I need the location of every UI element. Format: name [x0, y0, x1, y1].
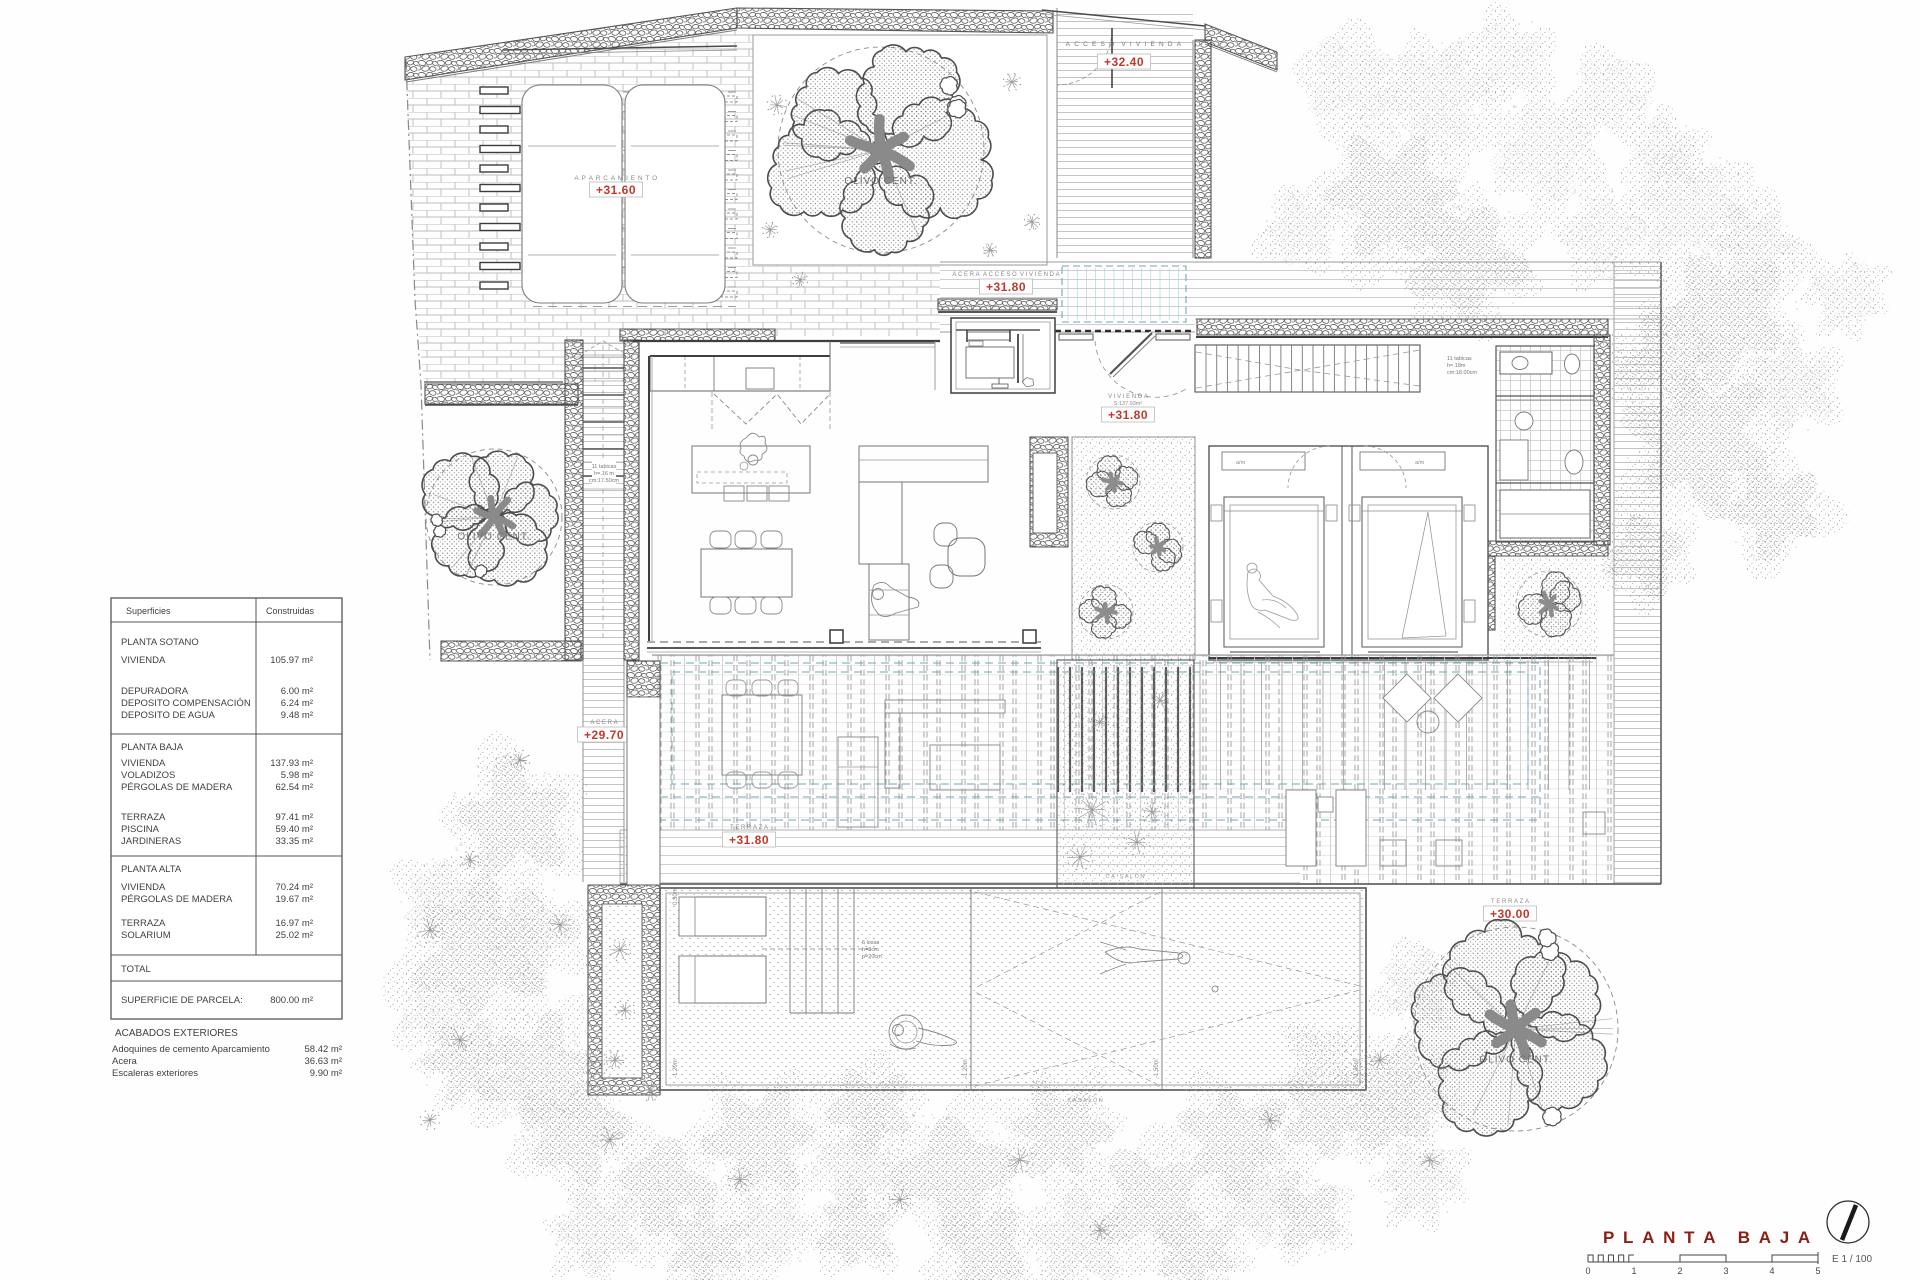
svg-text:V I V I E N D A: V I V I E N D A	[1108, 394, 1148, 400]
svg-text:2: 2	[1677, 1266, 1682, 1276]
svg-text:58.42 m²: 58.42 m²	[305, 1044, 343, 1055]
svg-text:SUPERFICIE DE PARCELA:: SUPERFICIE DE PARCELA:	[121, 995, 243, 1006]
svg-text:C A · S A L Ó N: C A · S A L Ó N	[1106, 873, 1145, 880]
svg-text:105.97 m²: 105.97 m²	[270, 655, 313, 666]
svg-text:VIVIENDA: VIVIENDA	[121, 655, 166, 666]
svg-text:p=20cm: p=20cm	[862, 954, 882, 960]
svg-text:9.90 m²: 9.90 m²	[310, 1068, 342, 1079]
svg-text:+29.70: +29.70	[584, 728, 624, 742]
svg-text:62.54 m²: 62.54 m²	[276, 782, 314, 793]
svg-text:4: 4	[1769, 1266, 1774, 1276]
svg-text:19.67 m²: 19.67 m²	[276, 894, 314, 905]
svg-text:TERRAZA: TERRAZA	[121, 918, 166, 929]
svg-text:6.24 m²: 6.24 m²	[281, 698, 313, 709]
svg-text:PISCINA: PISCINA	[121, 824, 160, 835]
svg-text:5: 5	[1815, 1266, 1820, 1276]
svg-text:PÉRGOLAS DE MADERA: PÉRGOLAS DE MADERA	[121, 782, 233, 793]
svg-text:T E R R A Z A: T E R R A Z A	[1491, 899, 1529, 905]
svg-text:Acera: Acera	[112, 1056, 138, 1067]
svg-text:PLANTA BAJA: PLANTA BAJA	[121, 742, 184, 753]
svg-text:70.24 m²: 70.24 m²	[276, 882, 314, 893]
svg-text:25.02 m²: 25.02 m²	[276, 930, 314, 941]
svg-text:PLANTA SOTANO: PLANTA SOTANO	[121, 637, 199, 648]
svg-text:DEPURADORA: DEPURADORA	[121, 686, 189, 697]
svg-text:-1.50m: -1.50m	[1154, 1059, 1160, 1078]
svg-text:S:137.93m²: S:137.93m²	[1114, 401, 1143, 407]
svg-text:SOLARIUM: SOLARIUM	[121, 930, 171, 941]
svg-text:+30.00: +30.00	[1490, 907, 1530, 921]
svg-text:A P A R C A M I E N T O: A P A R C A M I E N T O	[574, 175, 657, 182]
svg-text:Construidas: Construidas	[266, 606, 315, 616]
svg-text:PÉRGOLAS DE MADERA: PÉRGOLAS DE MADERA	[121, 894, 233, 905]
svg-text:TERRAZA: TERRAZA	[121, 812, 166, 823]
svg-text:5.98 m²: 5.98 m²	[281, 770, 313, 781]
svg-text:137.93 m²: 137.93 m²	[270, 758, 313, 769]
svg-text:-1.20m: -1.20m	[673, 1059, 679, 1078]
svg-text:h=.16 m: h=.16 m	[594, 471, 614, 477]
svg-text:+31.80: +31.80	[1108, 408, 1148, 422]
svg-text:11 tabicas: 11 tabicas	[592, 464, 617, 470]
svg-text:+32.40: +32.40	[1104, 55, 1144, 69]
svg-text:cm:17.50cm: cm:17.50cm	[589, 478, 619, 484]
svg-text:-1.20m: -1.20m	[963, 1059, 969, 1078]
svg-text:a/m: a/m	[1415, 460, 1425, 466]
svg-text:6.00 m²: 6.00 m²	[281, 686, 313, 697]
svg-text:A C E R A: A C E R A	[590, 720, 617, 726]
svg-text:6 losas: 6 losas	[862, 940, 880, 946]
svg-text:T E R R A Z A: T E R R A Z A	[730, 825, 768, 831]
svg-text:59.40 m²: 59.40 m²	[276, 824, 314, 835]
svg-text:A C C E S O V I V I E N D A: A C C E S O V I V I E N D A	[1066, 41, 1183, 48]
svg-text:16.97 m²: 16.97 m²	[276, 918, 314, 929]
svg-text:a/m: a/m	[1236, 460, 1246, 466]
svg-text:h=3cm: h=3cm	[862, 947, 879, 953]
svg-text:OLIVO CENT.: OLIVO CENT.	[457, 531, 530, 542]
svg-text:DEPOSITO DE AGUA: DEPOSITO DE AGUA	[121, 710, 215, 721]
svg-text:OLIVO CENT.: OLIVO CENT.	[1479, 1055, 1552, 1066]
svg-text:E 1 / 100: E 1 / 100	[1832, 1254, 1872, 1265]
svg-text:VOLADIZOS: VOLADIZOS	[121, 770, 175, 781]
svg-text:97.41 m²: 97.41 m²	[276, 812, 314, 823]
svg-text:33.35 m²: 33.35 m²	[276, 836, 314, 847]
svg-text:Escaleras exteriores: Escaleras exteriores	[112, 1068, 198, 1079]
svg-text:36.63 m²: 36.63 m²	[305, 1056, 343, 1067]
svg-text:0: 0	[1585, 1266, 1590, 1276]
svg-text:ACABADOS EXTERIORES: ACABADOS EXTERIORES	[115, 1028, 238, 1039]
svg-text:0.30m: 0.30m	[673, 888, 679, 905]
svg-text:11 tabicas: 11 tabicas	[1447, 356, 1472, 362]
svg-text:Adoquines de cemento Aparcamie: Adoquines de cemento Aparcamiento	[112, 1044, 270, 1055]
svg-text:DEPOSITO COMPENSACIÓN: DEPOSITO COMPENSACIÓN	[121, 698, 251, 709]
svg-text:VIVIENDA: VIVIENDA	[121, 758, 166, 769]
svg-text:3: 3	[1723, 1266, 1728, 1276]
svg-text:VIVIENDA: VIVIENDA	[121, 882, 166, 893]
svg-text:+31.80: +31.80	[729, 833, 769, 847]
svg-text:JARDINERAS: JARDINERAS	[121, 836, 181, 847]
svg-text:+31.60: +31.60	[596, 183, 636, 197]
svg-text:TOTAL: TOTAL	[121, 964, 151, 975]
svg-text:+31.80: +31.80	[986, 280, 1026, 294]
svg-text:cm:18.00cm: cm:18.00cm	[1447, 370, 1477, 376]
svg-text:OLIVO CENT.: OLIVO CENT.	[844, 176, 917, 187]
svg-text:PLANTA ALTA: PLANTA ALTA	[121, 864, 182, 875]
svg-text:1: 1	[1631, 1266, 1636, 1276]
svg-text:A C E R A A C C E S O V I V: A C E R A A C C E S O V I V I E N D A	[952, 272, 1059, 278]
svg-text:h=.18m: h=.18m	[1447, 363, 1466, 369]
svg-text:9.48 m²: 9.48 m²	[281, 710, 313, 721]
svg-text:Superficies: Superficies	[126, 606, 171, 616]
svg-text:800.00 m²: 800.00 m²	[270, 995, 313, 1006]
svg-text:P L A N T A B A J A: P L A N T A B A J A	[1603, 1228, 1812, 1247]
